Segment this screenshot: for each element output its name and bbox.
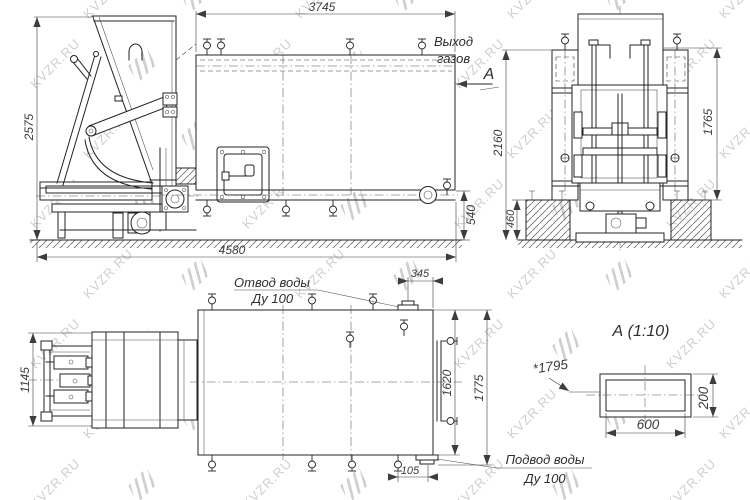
section-arrow-label: А xyxy=(483,66,495,83)
drain-valve-icon xyxy=(329,200,337,216)
dim-duct-height: 200 xyxy=(696,386,711,410)
valve-icon xyxy=(308,294,316,310)
water-inlet-label: Подвод воды xyxy=(506,452,585,467)
section-view-a: А (1:10) *1795 600 200 xyxy=(532,323,718,438)
plan-view-boiler xyxy=(190,294,462,471)
dim-duct-ref-length: *1795 xyxy=(532,357,570,377)
dim-base-length: 4580 xyxy=(219,243,246,257)
door-lock-icon xyxy=(245,165,254,176)
dim-plan-body-width: 1620 xyxy=(440,369,454,396)
valve-icon xyxy=(208,294,216,310)
dim-plan-overall-width: 1775 xyxy=(472,374,486,401)
dim-top-length: 3745 xyxy=(309,0,336,14)
end-view xyxy=(526,6,711,250)
dim-foundation-height: 460 xyxy=(505,209,517,228)
clamp-icon xyxy=(673,34,681,50)
dim-drain-height: 540 xyxy=(464,205,478,225)
gas-outlet-label: Выход xyxy=(434,34,473,49)
dim-duct-width: 600 xyxy=(637,417,660,432)
technical-drawing: 3745 2575 4580 540 Выход газов А xyxy=(0,0,750,500)
dim-end-body-height: 1765 xyxy=(701,108,715,135)
gas-outlet-label: газов xyxy=(437,51,470,66)
safety-valve-icon xyxy=(418,39,426,55)
valve-icon xyxy=(308,455,316,471)
plan-view-tipper: 1145 xyxy=(18,332,205,428)
drain-valve-icon xyxy=(282,200,290,216)
water-outlet-flange-icon xyxy=(398,305,418,310)
valve-icon xyxy=(208,455,216,471)
tap-icon xyxy=(441,417,457,425)
clamp-icon xyxy=(561,34,569,50)
water-outlet-label: Отвод воды xyxy=(234,275,310,290)
water-inlet-flange-icon xyxy=(416,455,438,460)
safety-valve-icon xyxy=(346,39,354,55)
valve-icon xyxy=(348,455,356,471)
dim-overall-height: 2575 xyxy=(22,113,36,141)
drawing-canvas: KVZR.RUKVZR.RUKVZR.RUKVZR.RUKVZR.RUKVZR.… xyxy=(0,0,750,500)
tap-icon xyxy=(441,337,457,345)
water-outlet-label: Ду 100 xyxy=(250,291,294,306)
safety-valve-icon xyxy=(217,39,225,55)
inspection-door xyxy=(217,147,269,202)
dim-tipper-width: 1145 xyxy=(18,367,32,393)
section-title: А (1:10) xyxy=(612,323,670,340)
dim-end-overall-height: 2160 xyxy=(491,129,505,157)
drain-flange-icon xyxy=(420,187,437,204)
front-view-boiler-body xyxy=(160,39,458,216)
dim-outlet-offset: 345 xyxy=(411,268,430,280)
water-inlet-label: Ду 100 xyxy=(522,471,566,486)
hopper-handle-icon xyxy=(129,44,142,60)
drain-valve-icon xyxy=(203,200,211,216)
dim-inlet-offset: 105 xyxy=(401,465,420,477)
safety-valve-icon xyxy=(203,39,211,55)
